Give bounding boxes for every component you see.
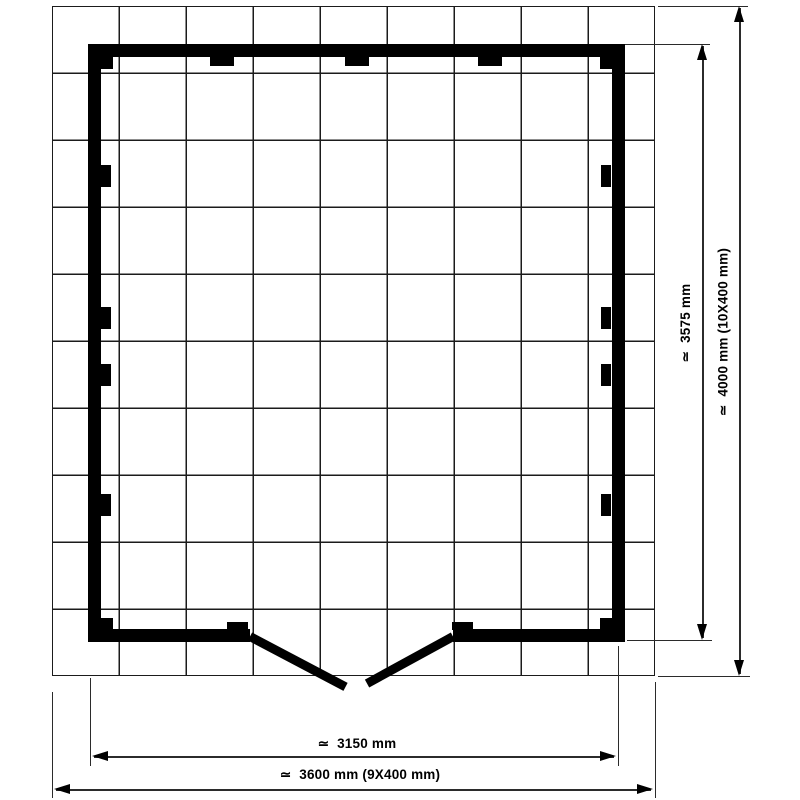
- wall-right: [612, 44, 625, 642]
- corner-joint-bottom-right: [600, 618, 617, 635]
- arrowhead-right-icon: [600, 751, 616, 761]
- arrowhead-up-icon: [697, 44, 707, 60]
- dimension-line-depth-outer: [739, 8, 741, 674]
- corner-joint-bottom-left: [96, 618, 113, 635]
- extension-line-right-inner: [618, 646, 620, 766]
- wall-cleat-top-1: [210, 57, 234, 66]
- dim-label-width-inner: ≃ 3150 mm: [272, 736, 442, 752]
- wall-cleat-right-4: [601, 494, 611, 516]
- wall-cleat-left-1: [101, 165, 111, 187]
- door-jamb-left: [227, 622, 248, 630]
- arrowhead-right-icon: [637, 784, 653, 794]
- dimension-line-width-outer: [56, 789, 651, 791]
- dim-label-width-outer: ≃ 3600 mm (9X400 mm): [240, 767, 480, 783]
- extension-line-left-inner: [90, 678, 92, 766]
- arrowhead-left-icon: [54, 784, 70, 794]
- arrowhead-down-icon: [697, 624, 707, 640]
- dim-label-depth-outer: ≃ 4000 mm (10X400 mm): [716, 225, 734, 440]
- wall-cleat-left-4: [101, 494, 111, 516]
- arrowhead-left-icon: [92, 751, 108, 761]
- foundation-grid: [52, 6, 655, 676]
- wall-cleat-top-2: [345, 57, 369, 66]
- dim-label-depth-inner: ≃ 3575 mm: [678, 263, 696, 383]
- wall-cleat-left-2: [101, 307, 111, 329]
- wall-cleat-left-3: [101, 364, 111, 386]
- extension-line-left-outer: [52, 692, 54, 798]
- dimension-line-width-inner: [94, 756, 614, 758]
- arrowhead-down-icon: [734, 660, 744, 676]
- corner-joint-top-right: [600, 52, 617, 69]
- wall-cleat-top-3: [478, 57, 502, 66]
- wall-cleat-right-1: [601, 165, 611, 187]
- floor-plan-canvas: ≃ 3575 mm ≃ 4000 mm (10X400 mm) ≃ 3150 m…: [0, 0, 800, 800]
- wall-left: [88, 44, 101, 642]
- wall-cleat-right-2: [601, 307, 611, 329]
- dimension-line-depth-inner: [702, 46, 704, 638]
- wall-top: [88, 44, 625, 57]
- arrowhead-up-icon: [734, 6, 744, 22]
- door-jamb-right: [452, 622, 473, 630]
- wall-cleat-right-3: [601, 364, 611, 386]
- extension-line-right-outer: [655, 682, 657, 798]
- corner-joint-top-left: [96, 52, 113, 69]
